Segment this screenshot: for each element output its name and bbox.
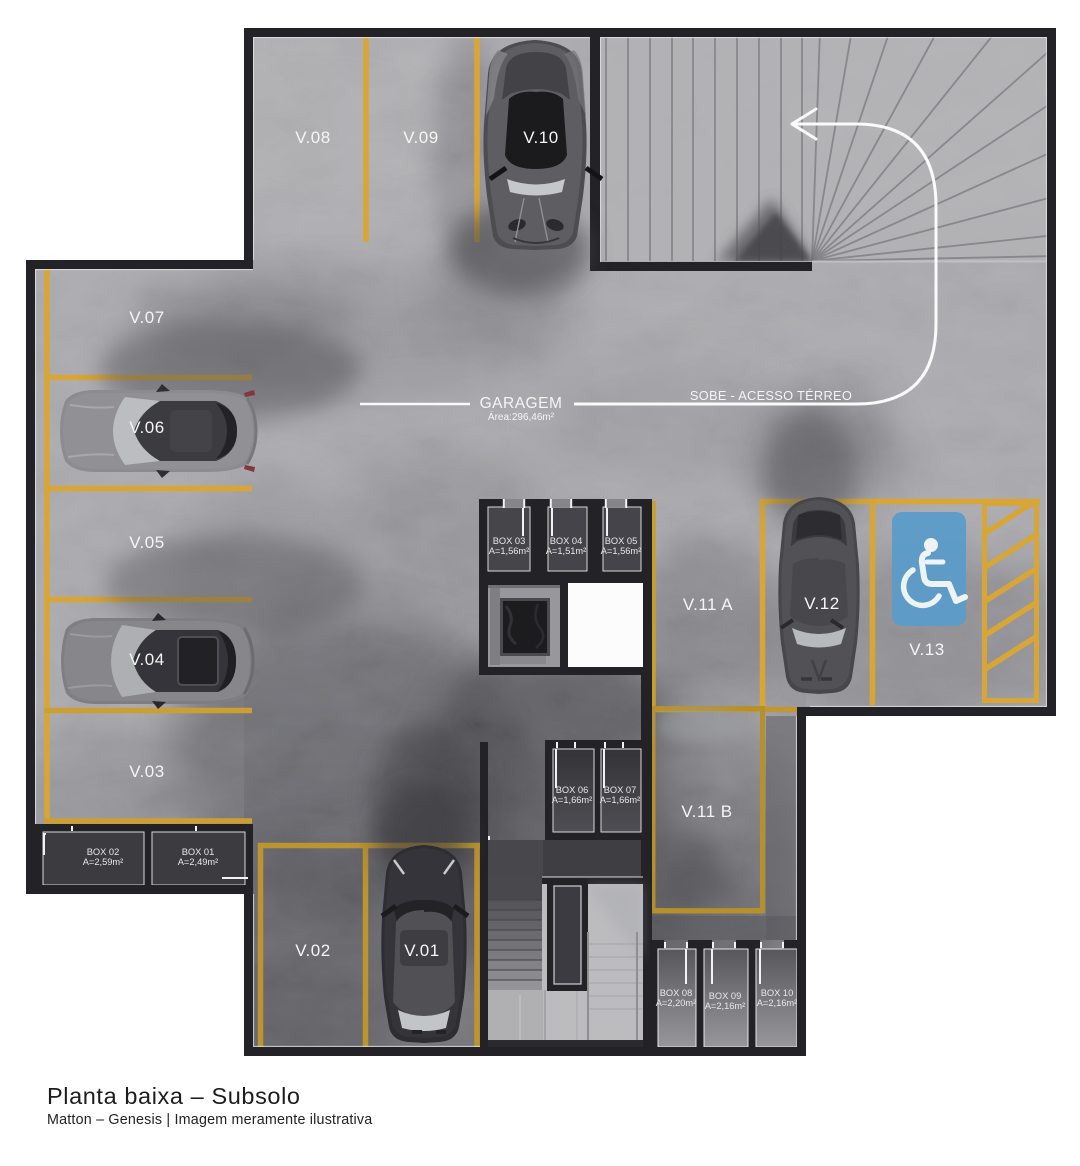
svg-text:BOX 03: BOX 03 <box>493 536 526 546</box>
svg-text:Área:296,46m²: Área:296,46m² <box>488 410 555 423</box>
svg-text:V.11 A: V.11 A <box>683 595 733 614</box>
svg-text:Planta baixa – Subsolo: Planta baixa – Subsolo <box>47 1083 301 1109</box>
svg-text:A=1,66m²: A=1,66m² <box>552 795 593 805</box>
svg-text:BOX 01: BOX 01 <box>182 847 215 857</box>
svg-text:V.12: V.12 <box>804 594 839 613</box>
svg-text:V.05: V.05 <box>129 533 164 552</box>
svg-text:A=2,16m²: A=2,16m² <box>757 998 798 1008</box>
svg-text:V.03: V.03 <box>129 762 164 781</box>
svg-text:BOX 08: BOX 08 <box>660 988 693 998</box>
svg-text:BOX 09: BOX 09 <box>709 991 742 1001</box>
svg-text:A=1,56m²: A=1,56m² <box>489 546 530 556</box>
svg-text:V.07: V.07 <box>129 308 164 327</box>
svg-text:A=2,16m²: A=2,16m² <box>705 1001 746 1011</box>
svg-text:BOX 05: BOX 05 <box>605 536 638 546</box>
svg-text:V.11 B: V.11 B <box>681 802 732 821</box>
svg-text:Matton – Genesis | Imagem mera: Matton – Genesis | Imagem meramente ilus… <box>47 1112 372 1128</box>
svg-text:V.08: V.08 <box>295 128 330 147</box>
svg-text:A=2,20m²: A=2,20m² <box>656 998 697 1008</box>
svg-text:V.01: V.01 <box>404 941 439 960</box>
svg-text:GARAGEM: GARAGEM <box>480 395 563 412</box>
svg-text:BOX 02: BOX 02 <box>87 847 120 857</box>
svg-text:V.06: V.06 <box>129 418 164 437</box>
svg-text:A=1,66m²: A=1,66m² <box>600 795 641 805</box>
svg-text:A=1,56m²: A=1,56m² <box>601 546 642 556</box>
svg-text:V.04: V.04 <box>129 650 164 669</box>
svg-text:BOX 10: BOX 10 <box>761 988 794 998</box>
svg-text:V.10: V.10 <box>523 128 558 147</box>
svg-text:A=2,59m²: A=2,59m² <box>83 857 124 867</box>
svg-text:BOX 04: BOX 04 <box>550 536 583 546</box>
svg-text:A=2,49m²: A=2,49m² <box>178 857 219 867</box>
svg-text:V.09: V.09 <box>403 128 438 147</box>
svg-text:V.13: V.13 <box>909 640 944 659</box>
svg-text:A=1,51m²: A=1,51m² <box>546 546 587 556</box>
svg-text:V.02: V.02 <box>295 941 330 960</box>
svg-text:BOX 07: BOX 07 <box>604 785 637 795</box>
svg-text:SOBE - ACESSO TÉRREO: SOBE - ACESSO TÉRREO <box>690 388 852 403</box>
svg-text:BOX 06: BOX 06 <box>556 785 589 795</box>
